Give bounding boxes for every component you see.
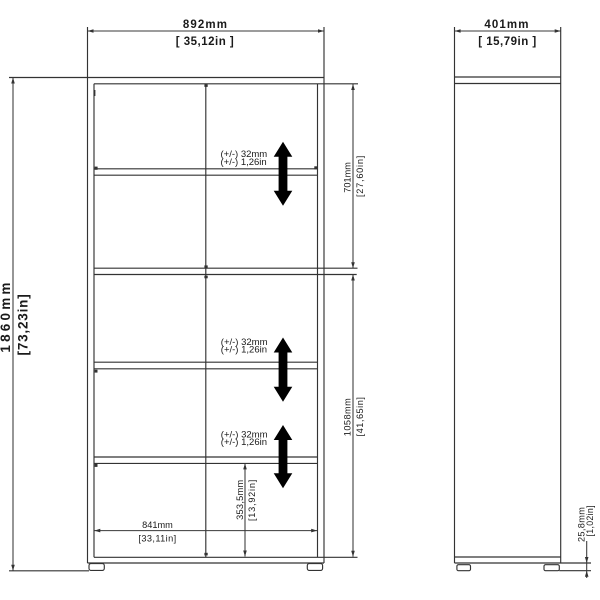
svg-text:[73,23in]: [73,23in]: [15, 294, 30, 356]
svg-text:[ 15,79in ]: [ 15,79in ]: [478, 36, 537, 48]
svg-text:(+/-) 1,26in: (+/-) 1,26in: [221, 345, 267, 356]
svg-text:892mm: 892mm: [183, 19, 228, 31]
svg-text:[27,60in]: [27,60in]: [355, 155, 365, 197]
svg-text:(+/-) 1,26in: (+/-) 1,26in: [221, 437, 267, 448]
svg-text:[33,11in]: [33,11in]: [138, 534, 176, 544]
svg-text:[1,02in]: [1,02in]: [585, 505, 595, 536]
svg-text:1058mm: 1058mm: [343, 398, 353, 436]
svg-text:841mm: 841mm: [142, 520, 173, 530]
svg-text:701mm: 701mm: [343, 162, 353, 193]
svg-text:(+/-) 1,26in: (+/-) 1,26in: [221, 157, 267, 168]
svg-text:[ 35,12in ]: [ 35,12in ]: [176, 36, 235, 48]
svg-text:[13,92in]: [13,92in]: [247, 479, 257, 521]
svg-text:401mm: 401mm: [484, 19, 529, 31]
svg-text:353,5mm: 353,5mm: [235, 479, 245, 519]
svg-text:1860mm: 1860mm: [0, 279, 13, 352]
svg-text:[41,65in]: [41,65in]: [355, 397, 365, 437]
